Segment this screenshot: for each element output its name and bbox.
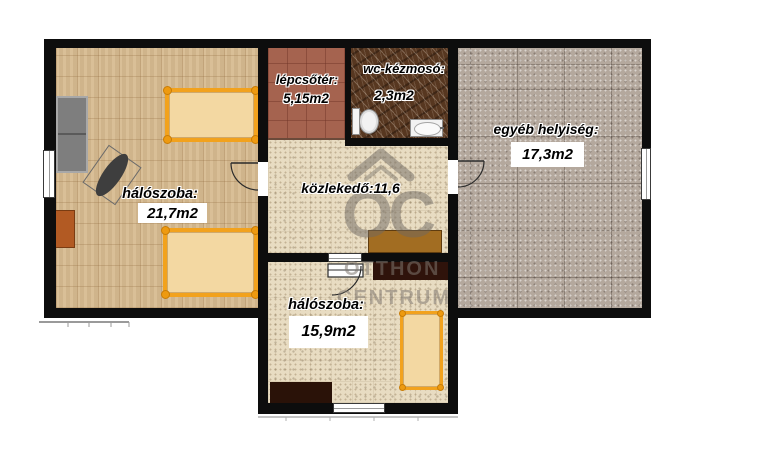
wall-mid-vertical [258, 39, 268, 410]
window-left [43, 150, 55, 198]
sink-icon [410, 119, 443, 137]
bed-knob-icon [163, 86, 172, 95]
terrace-tick [286, 417, 418, 421]
room-label-other: egyéb helyiség: [485, 121, 607, 137]
wall-bottom-right [448, 308, 651, 318]
toilet-bowl-icon [359, 109, 379, 134]
stairwell-edge-line [268, 138, 345, 140]
room-area-other: 17,3m2 [511, 142, 584, 167]
sofa [56, 96, 88, 173]
window-right [641, 148, 651, 200]
dresser [55, 210, 75, 248]
room-label-bedroom-bottom: hálószoba: [276, 297, 376, 313]
bed-knob-icon [399, 310, 406, 317]
wardrobe-dark-top [373, 262, 450, 280]
wall-stair-wc-divider [345, 39, 351, 138]
bed-bottom [163, 228, 258, 297]
room-area-bedroom-bottom: 15,9m2 [289, 316, 368, 348]
room-area-stairwell: 5,15m2 [270, 91, 342, 106]
door-opening-other-room [448, 160, 458, 194]
window-bedroom-bottom [333, 403, 385, 413]
bed-top [165, 88, 258, 142]
bed-knob-icon [161, 290, 170, 299]
bed-knob-icon [437, 310, 444, 317]
wall-under-wc [345, 138, 458, 146]
terrace-tick [68, 322, 129, 327]
door-threshold-bedroom [328, 253, 362, 262]
bed-knob-icon [161, 226, 170, 235]
room-label-hallway: közlekedő:11,6 [293, 180, 408, 196]
hall-cabinet [368, 230, 442, 253]
bed-knob-icon [163, 135, 172, 144]
room-area-wc: 2,3m2 [360, 87, 428, 103]
floor-plan: OC OTTHON CENTRUM hálószoba: 21,7m2 lépc… [0, 0, 768, 462]
room-other-floor [458, 48, 642, 308]
bed-knob-icon [399, 384, 406, 391]
room-label-bedroom-left: hálószoba: [110, 186, 210, 202]
wall-right-vertical [448, 39, 458, 410]
room-label-wc: wc-kézmosó: [352, 61, 456, 76]
room-area-bedroom-left: 21,7m2 [138, 203, 207, 223]
wardrobe-dark-bottom [270, 382, 332, 403]
bed-knob-icon [437, 384, 444, 391]
tap-icon [440, 127, 444, 129]
bed-vertical [400, 311, 443, 390]
room-label-stairwell: lépcsőtér: [268, 72, 346, 87]
wall-bottom-left [44, 308, 268, 318]
door-opening-bedroom-left [258, 162, 268, 196]
